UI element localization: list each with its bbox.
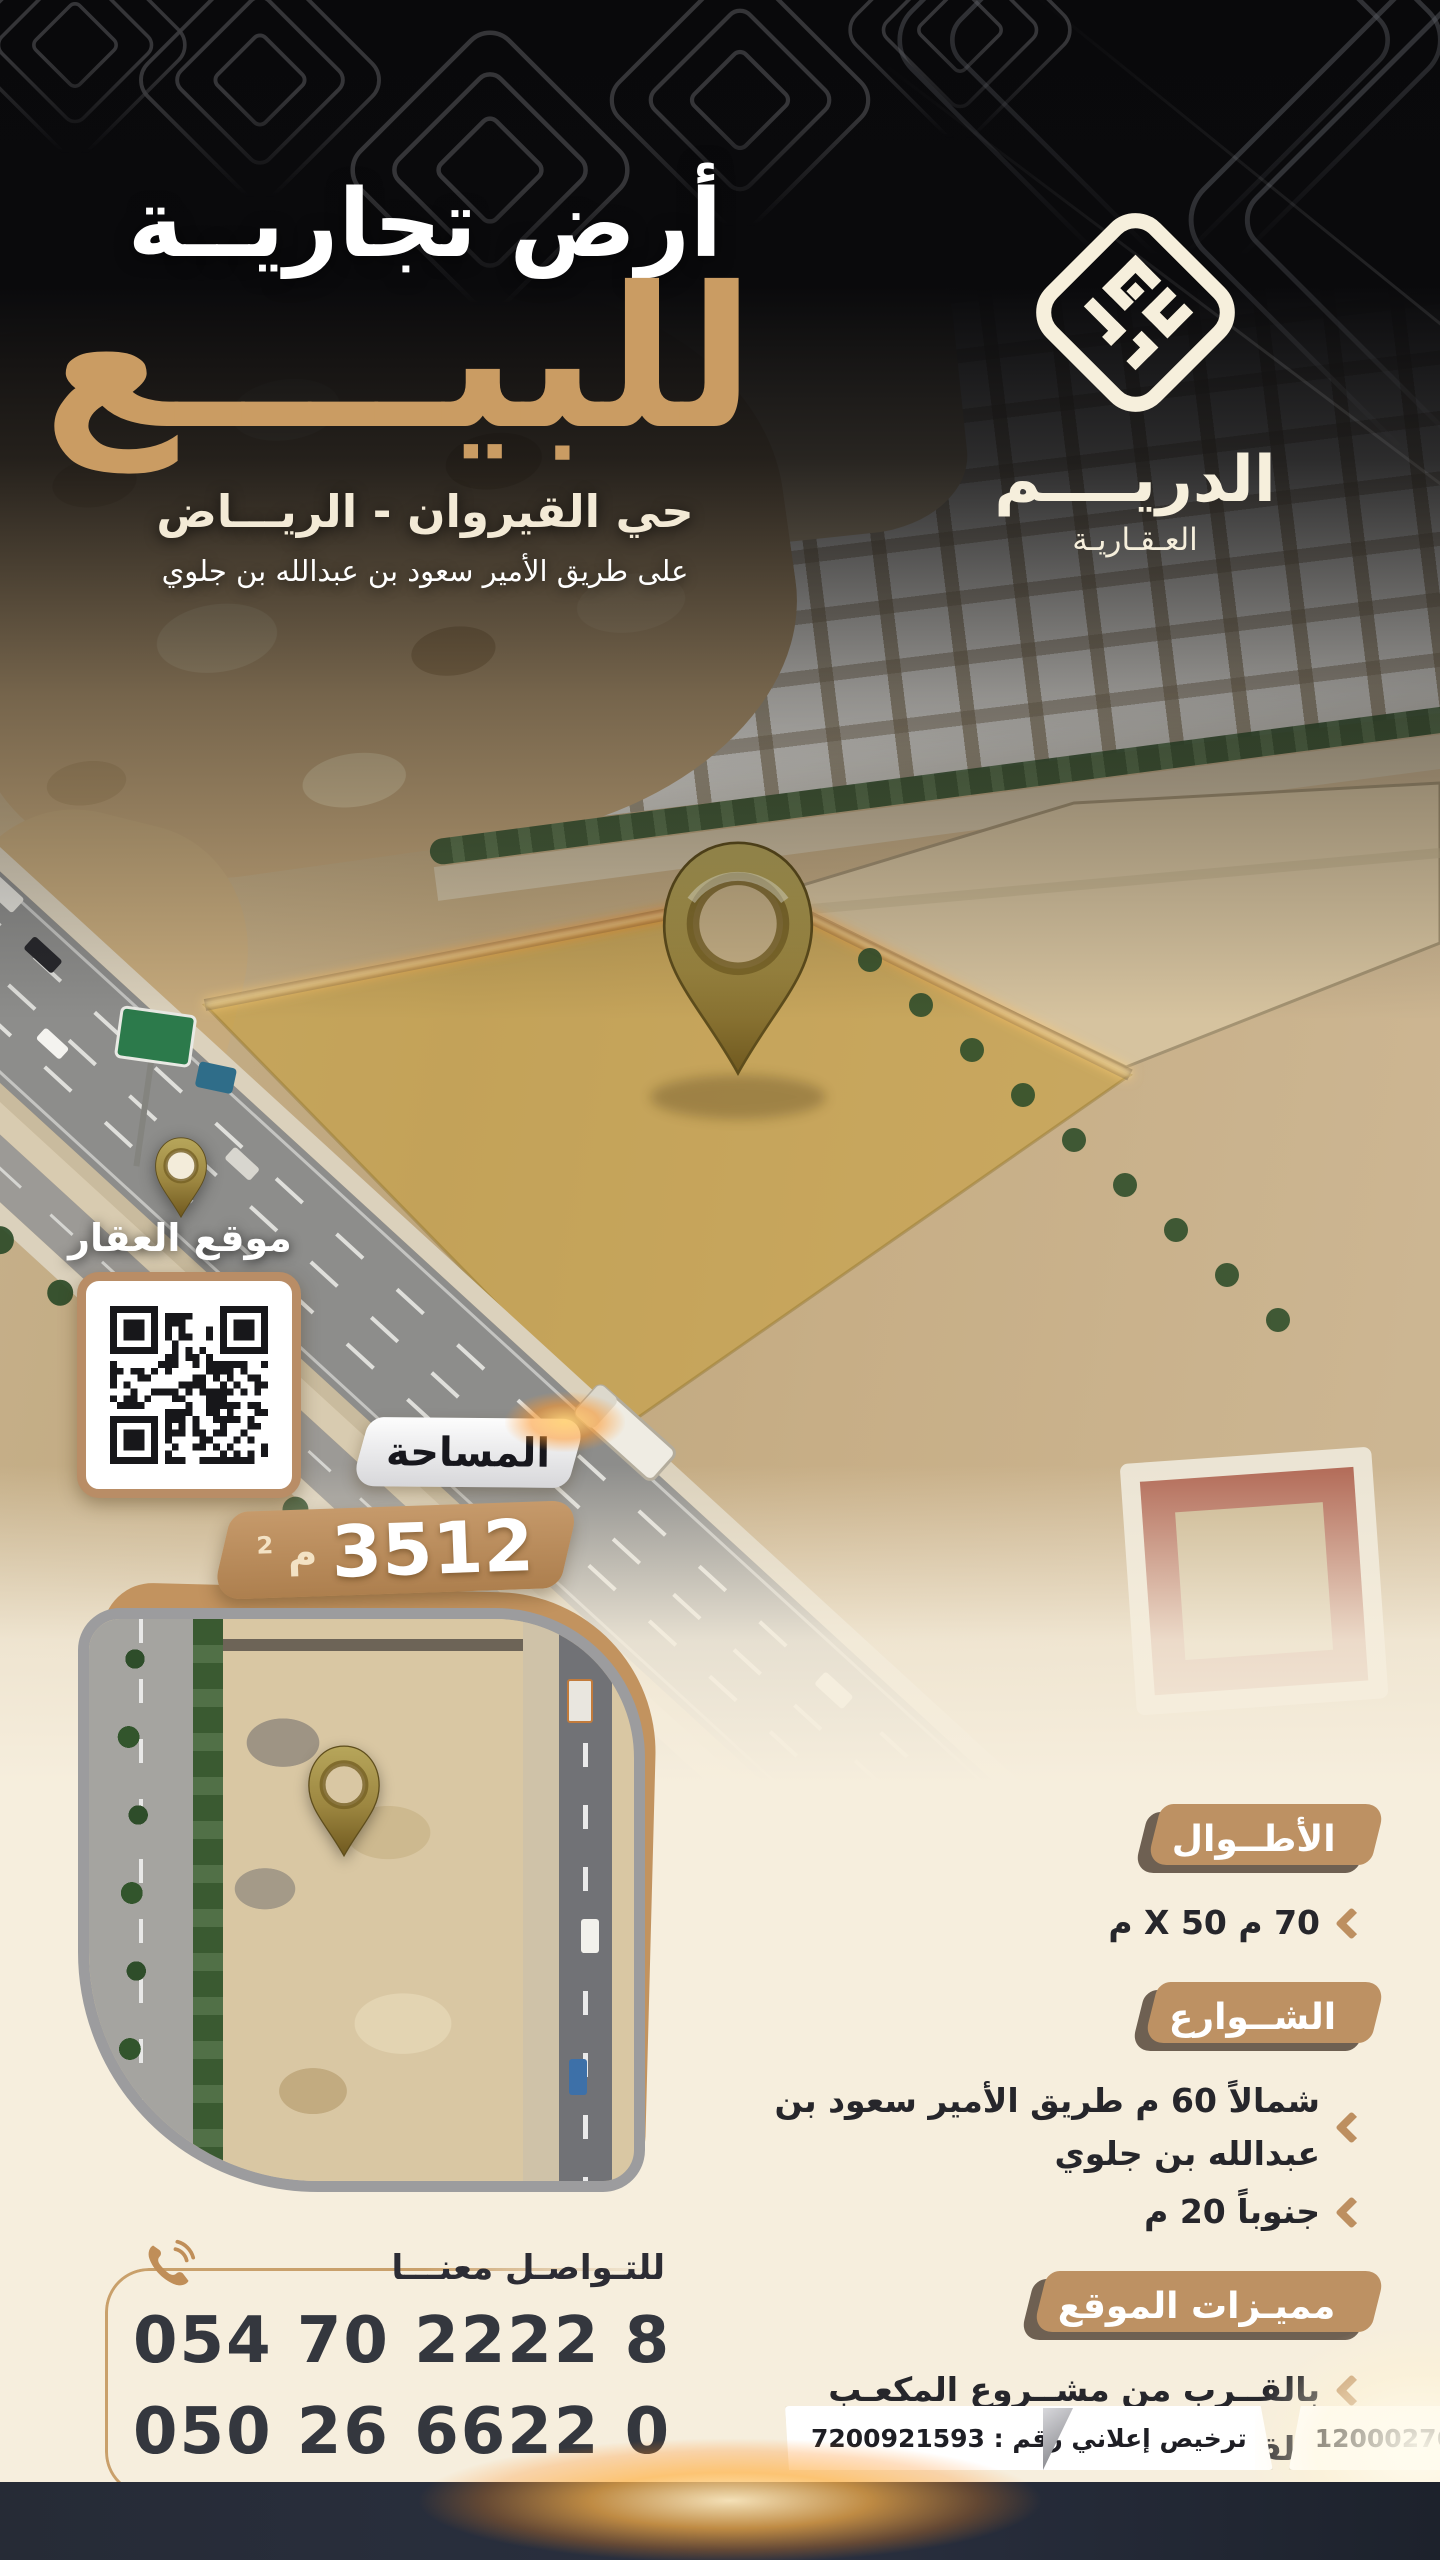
title-for-sale: للبيــــع bbox=[95, 266, 755, 451]
section-title-badge: الأطــوال bbox=[1134, 1812, 1373, 1873]
area-value-badge: 3512 م 2 bbox=[211, 1500, 580, 1600]
ad-license-badge: ترخيص إعلاني رقم : 7200921593 bbox=[785, 2406, 1273, 2470]
district-line: حي القيروان - الريـــاض bbox=[95, 485, 755, 538]
phone-number: 050 26 6622 0 bbox=[133, 2387, 673, 2478]
brand-name: الدريــــم bbox=[960, 448, 1310, 512]
small-location-pin-icon bbox=[150, 1134, 212, 1221]
inset-pin-icon bbox=[301, 1741, 387, 1861]
real-estate-poster: أرض تجاريــة للبيــــع حي القيروان - الر… bbox=[0, 0, 1440, 2560]
section-dimensions: الأطــوال 70 م X 50 م bbox=[720, 1812, 1365, 1950]
area-unit: م 2 bbox=[256, 1530, 318, 1578]
license-ribbons: رخصة عقارية رقم : 1200027687 ترخيص إعلان… bbox=[785, 2406, 1440, 2470]
road-line: على طريق الأمير سعود بن عبدالله بن جلوي bbox=[95, 554, 755, 588]
brand-diamond-logo-icon bbox=[1028, 205, 1243, 420]
bottom-dark-strip bbox=[0, 2482, 1440, 2560]
real-estate-license-badge: رخصة عقارية رقم : 1200027687 bbox=[1289, 2406, 1440, 2470]
list-item: شمالاً 60 م طريق الأمير سعود بن عبدالله … bbox=[720, 2075, 1365, 2181]
inset-palm-trees bbox=[103, 1619, 167, 2181]
qr-code-pattern bbox=[103, 1299, 275, 1471]
inset-blue-truck bbox=[569, 2059, 587, 2095]
inset-aerial-photo bbox=[78, 1608, 645, 2192]
kufic-pattern-diamond bbox=[840, 0, 1080, 150]
chevron-bullet-icon bbox=[1335, 1907, 1368, 1940]
chevron-bullet-icon bbox=[1335, 2197, 1368, 2230]
inset-land-parcel bbox=[223, 1619, 523, 2181]
inset-hedge bbox=[193, 1619, 223, 2181]
chevron-bullet-icon bbox=[1335, 2374, 1368, 2407]
list-item: جنوباً 20 م bbox=[720, 2186, 1365, 2239]
inset-truck bbox=[567, 1679, 593, 1723]
phone-number: 054 70 2222 8 bbox=[133, 2296, 673, 2387]
brand-tagline: العـقـاريـة bbox=[960, 522, 1310, 558]
area-value-number: 3512 bbox=[330, 1504, 535, 1594]
contact-us-label: للتـواصـل معنـــا bbox=[425, 2248, 665, 2288]
section-title-badge: الشــوارع bbox=[1130, 1990, 1373, 2051]
chevron-bullet-icon bbox=[1335, 2111, 1368, 2144]
area-label-text: المساحة bbox=[386, 1429, 550, 1477]
list-item: 70 م X 50 م bbox=[720, 1897, 1365, 1950]
section-title-badge: مميـزات الموقع bbox=[1020, 2279, 1373, 2340]
section-streets: الشــوارع شمالاً 60 م طريق الأمير سعود ب… bbox=[720, 1990, 1365, 2239]
inset-sidewalk bbox=[523, 1619, 559, 2181]
brand-block: الدريــــم العـقـاريـة bbox=[960, 205, 1310, 558]
pin-shadow bbox=[650, 1075, 826, 1119]
property-location-label: موقع العقار bbox=[55, 1216, 305, 1260]
inset-car bbox=[119, 2089, 135, 2119]
inset-van bbox=[581, 1919, 599, 1953]
area-label-badge: المساحة bbox=[351, 1417, 587, 1488]
qr-code bbox=[77, 1272, 301, 1498]
phone-numbers: 054 70 2222 8 050 26 6622 0 bbox=[133, 2296, 673, 2478]
inset-top-wall bbox=[223, 1639, 523, 1651]
kufic-pattern-diamond bbox=[0, 0, 195, 165]
phone-icon bbox=[140, 2238, 196, 2294]
headline-block: أرض تجاريــة للبيــــع حي القيروان - الر… bbox=[95, 178, 755, 588]
